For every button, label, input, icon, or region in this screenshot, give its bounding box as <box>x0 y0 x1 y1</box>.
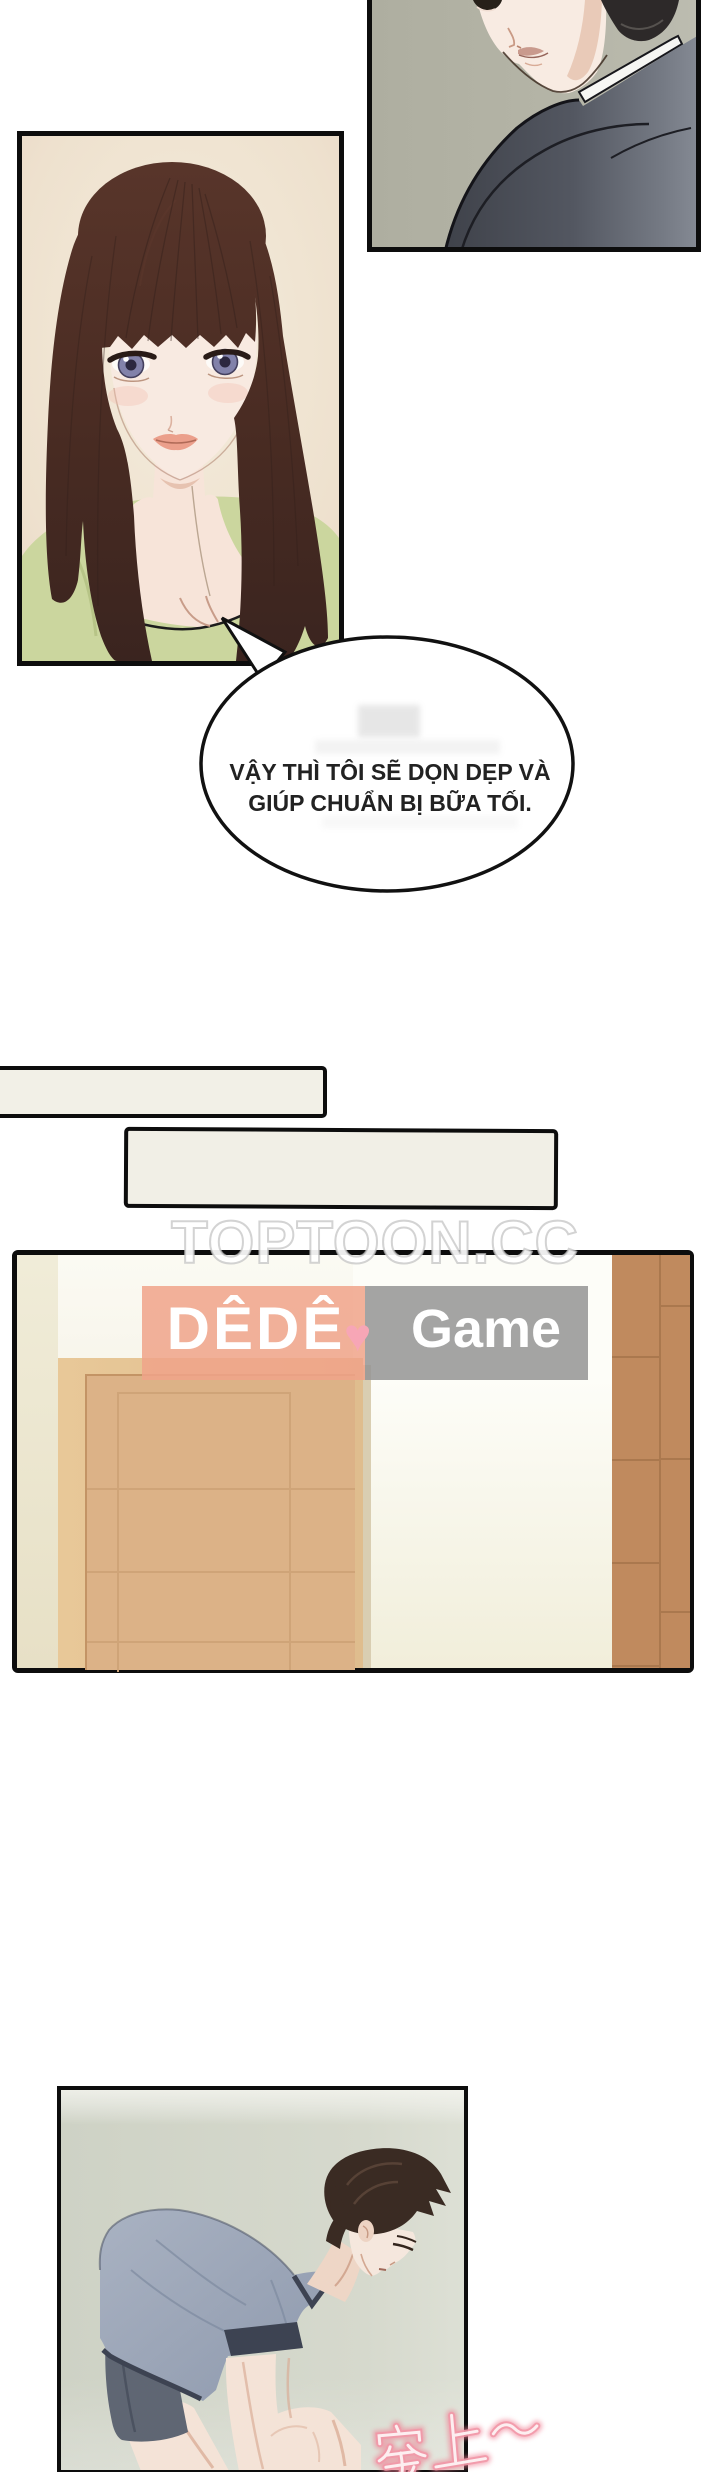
svg-text:GIÚP CHUẨN BỊ BỮA TỐI.: GIÚP CHUẨN BỊ BỮA TỐI. <box>248 789 532 816</box>
svg-text:VẬY THÌ TÔI SẼ DỌN DẸP VÀ: VẬY THÌ TÔI SẼ DỌN DẸP VÀ <box>229 758 550 785</box>
